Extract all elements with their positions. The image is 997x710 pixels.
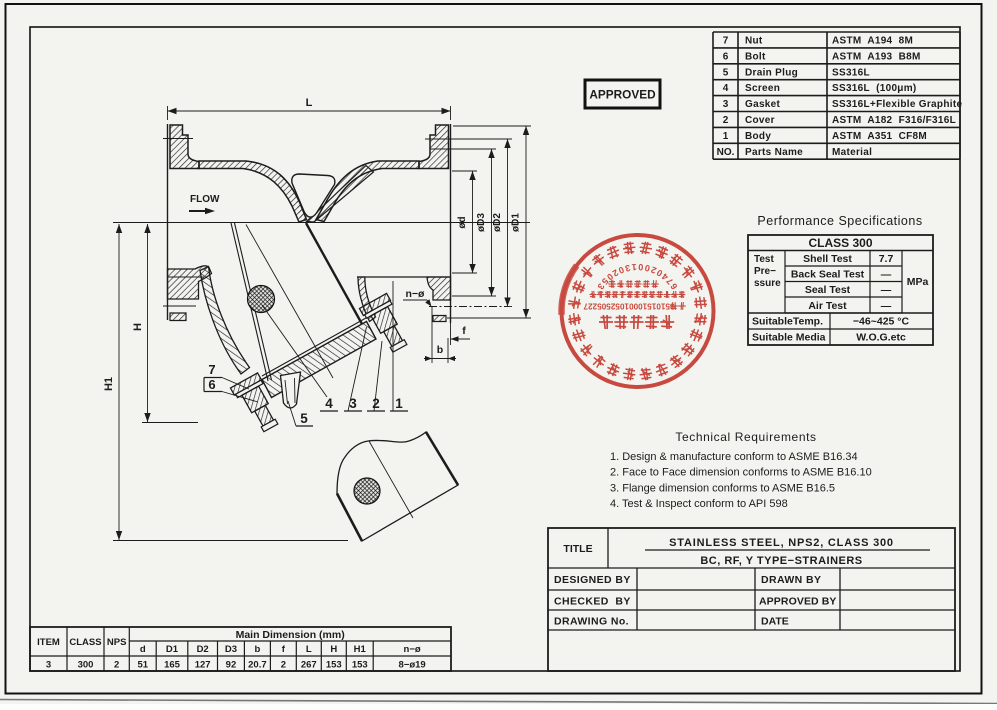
svg-text:267: 267: [301, 660, 317, 671]
svg-text:Back Seal Test: Back Seal Test: [791, 269, 865, 281]
svg-text:ITEM: ITEM: [37, 637, 60, 648]
svg-text:øD3: øD3: [476, 213, 487, 232]
svg-text:DRAWING No.: DRAWING No.: [554, 616, 629, 628]
svg-text:ssure: ssure: [754, 278, 781, 289]
svg-text:ASTM A194 8M: ASTM A194 8M: [832, 36, 913, 47]
svg-text:H1: H1: [103, 377, 115, 391]
svg-text:−46~425 °C: −46~425 °C: [853, 316, 910, 328]
svg-text:1: 1: [723, 131, 729, 142]
svg-text:DRAWN BY: DRAWN BY: [761, 574, 821, 586]
svg-text:n−ø: n−ø: [406, 288, 426, 300]
svg-text:2. Face to Face dimension con: 2. Face to Face dimension conforms to AS…: [610, 467, 872, 479]
svg-text:5: 5: [723, 67, 729, 78]
svg-text:TITLE: TITLE: [563, 543, 592, 555]
svg-text:NPS: NPS: [107, 637, 127, 648]
svg-text:Main Dimension (mm): Main Dimension (mm): [236, 629, 345, 641]
svg-text:MPa: MPa: [907, 276, 929, 288]
svg-text:4: 4: [723, 83, 729, 94]
svg-text:0: 0: [638, 262, 644, 272]
svg-text:6: 6: [208, 377, 215, 392]
svg-text:øD1: øD1: [511, 213, 522, 232]
svg-text:W.O.G.etc: W.O.G.etc: [856, 332, 906, 344]
svg-text:NO.: NO.: [717, 147, 735, 158]
svg-text:153: 153: [352, 660, 368, 671]
svg-text:øD2: øD2: [492, 213, 503, 232]
svg-text:127: 127: [195, 660, 211, 671]
svg-text:n−ø: n−ø: [404, 644, 421, 655]
svg-text:Nut: Nut: [745, 36, 763, 47]
svg-text:STAINLESS STEEL, NPS2, CLASS 3: STAINLESS STEEL, NPS2, CLASS 300: [669, 537, 894, 549]
svg-text:D3: D3: [225, 644, 237, 655]
svg-text:APPROVED BY: APPROVED BY: [759, 596, 837, 608]
svg-text:L: L: [306, 97, 313, 109]
svg-text:ASTM A193 B8M: ASTM A193 B8M: [832, 51, 921, 62]
svg-text:2: 2: [281, 660, 286, 671]
svg-text:165: 165: [164, 660, 181, 671]
svg-text:3. Flange dimension conforms: 3. Flange dimension conforms to ASME B16…: [610, 482, 835, 494]
svg-text:Cover: Cover: [745, 115, 775, 126]
svg-text:Screen: Screen: [745, 83, 780, 94]
svg-text:Parts Name: Parts Name: [745, 147, 803, 158]
svg-text:35101510001052505227: 35101510001052505227: [583, 302, 675, 311]
svg-text:4: 4: [325, 396, 333, 411]
svg-text:SS316L (100μm): SS316L (100μm): [832, 83, 917, 94]
svg-text:7: 7: [208, 362, 215, 377]
svg-text:DATE: DATE: [761, 616, 789, 628]
svg-text:CLASS: CLASS: [69, 637, 101, 648]
svg-text:8−ø19: 8−ø19: [398, 660, 425, 671]
svg-text:Bolt: Bolt: [745, 51, 766, 62]
svg-text:APPROVED: APPROVED: [589, 88, 656, 102]
svg-text:b: b: [437, 344, 443, 356]
svg-text:ASTM A182 F316/F316L: ASTM A182 F316/F316L: [832, 115, 956, 126]
svg-text:3: 3: [723, 99, 729, 110]
svg-text:b: b: [254, 644, 260, 655]
svg-text:6: 6: [723, 51, 729, 62]
svg-text:ød: ød: [457, 216, 468, 228]
svg-text:Body: Body: [745, 131, 771, 142]
svg-text:2: 2: [372, 396, 380, 411]
svg-text:7.7: 7.7: [879, 253, 894, 265]
svg-text:1. Design & manufacture confo: 1. Design & manufacture conform to ASME …: [610, 451, 858, 463]
svg-text:153: 153: [326, 660, 342, 671]
svg-text:H1: H1: [354, 644, 367, 655]
svg-text:Gasket: Gasket: [745, 99, 781, 110]
svg-text:20.7: 20.7: [248, 660, 267, 671]
svg-text:d: d: [140, 644, 146, 655]
svg-text:—: —: [881, 300, 892, 312]
svg-text:Shell Test: Shell Test: [803, 253, 852, 265]
svg-text:4. Test & Inspect conform to: 4. Test & Inspect conform to API 598: [610, 498, 788, 510]
svg-text:Drain Plug: Drain Plug: [745, 67, 798, 78]
svg-text:3: 3: [46, 660, 51, 671]
svg-text:—: —: [881, 284, 892, 296]
svg-text:7: 7: [723, 36, 729, 47]
svg-text:Suitable Media: Suitable Media: [752, 332, 826, 344]
svg-text:2: 2: [114, 660, 119, 671]
svg-text:H: H: [132, 323, 144, 331]
svg-text:Seal Test: Seal Test: [805, 284, 851, 296]
svg-text:CHECKED BY: CHECKED BY: [554, 596, 631, 608]
svg-text:Performance Specifications: Performance Specifications: [757, 214, 922, 228]
svg-text:1: 1: [631, 262, 637, 272]
svg-text:H: H: [330, 644, 337, 655]
svg-text:5: 5: [300, 411, 308, 426]
svg-text:Technical Requirements: Technical Requirements: [675, 430, 816, 444]
svg-text:FLOW: FLOW: [190, 194, 220, 205]
svg-text:2: 2: [723, 115, 729, 126]
svg-text:51: 51: [137, 660, 148, 671]
svg-text:ASTM A351 CF8M: ASTM A351 CF8M: [832, 131, 927, 142]
svg-text:DESIGNED BY: DESIGNED BY: [554, 574, 631, 586]
svg-text:f: f: [462, 325, 466, 337]
svg-text:SS316L+Flexible Graphite: SS316L+Flexible Graphite: [832, 99, 962, 110]
svg-text:300: 300: [78, 660, 94, 671]
svg-text:CLASS 300: CLASS 300: [808, 236, 872, 250]
svg-text:L: L: [306, 644, 312, 655]
svg-text:SS316L: SS316L: [832, 67, 870, 78]
svg-text:SuitableTemp.: SuitableTemp.: [752, 316, 823, 328]
svg-text:Test: Test: [754, 254, 774, 265]
svg-text:Pre−: Pre−: [754, 266, 776, 277]
svg-text:D2: D2: [197, 644, 209, 655]
svg-text:Air Test: Air Test: [808, 300, 847, 312]
svg-text:Material: Material: [832, 147, 872, 158]
svg-text:—: —: [881, 269, 892, 281]
svg-text:D1: D1: [166, 644, 179, 655]
svg-text:BC, RF, Y TYPE−STRAINERS: BC, RF, Y TYPE−STRAINERS: [700, 555, 862, 567]
svg-text:92: 92: [226, 660, 237, 671]
svg-text:1: 1: [395, 396, 403, 411]
